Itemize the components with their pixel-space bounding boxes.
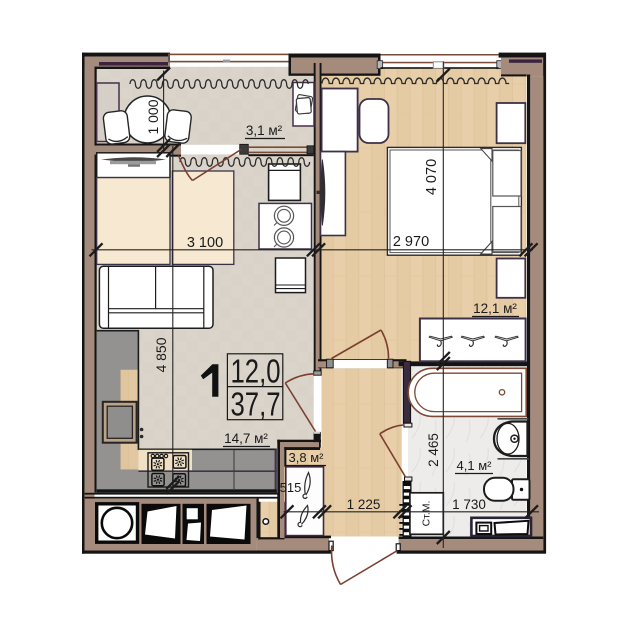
svg-text:3,8 м²: 3,8 м² bbox=[289, 450, 325, 465]
svg-text:4 070: 4 070 bbox=[424, 159, 440, 195]
svg-text:37,7: 37,7 bbox=[231, 386, 281, 423]
svg-text:2 970: 2 970 bbox=[393, 234, 429, 250]
svg-text:4,1 м²: 4,1 м² bbox=[457, 458, 493, 473]
svg-text:4 850: 4 850 bbox=[153, 337, 169, 372]
svg-text:12,1 м²: 12,1 м² bbox=[473, 301, 517, 316]
svg-text:1 730: 1 730 bbox=[452, 497, 486, 512]
svg-text:3 100: 3 100 bbox=[187, 235, 223, 251]
svg-text:515: 515 bbox=[280, 480, 302, 495]
svg-text:Ст.М.: Ст.М. bbox=[421, 501, 433, 527]
svg-text:12,0: 12,0 bbox=[231, 353, 281, 390]
svg-text:3,1 м²: 3,1 м² bbox=[246, 123, 283, 138]
svg-text:2 465: 2 465 bbox=[426, 433, 441, 467]
svg-text:14,7 м²: 14,7 м² bbox=[224, 431, 268, 446]
svg-text:1 225: 1 225 bbox=[347, 497, 381, 512]
svg-text:1 000: 1 000 bbox=[145, 99, 161, 134]
